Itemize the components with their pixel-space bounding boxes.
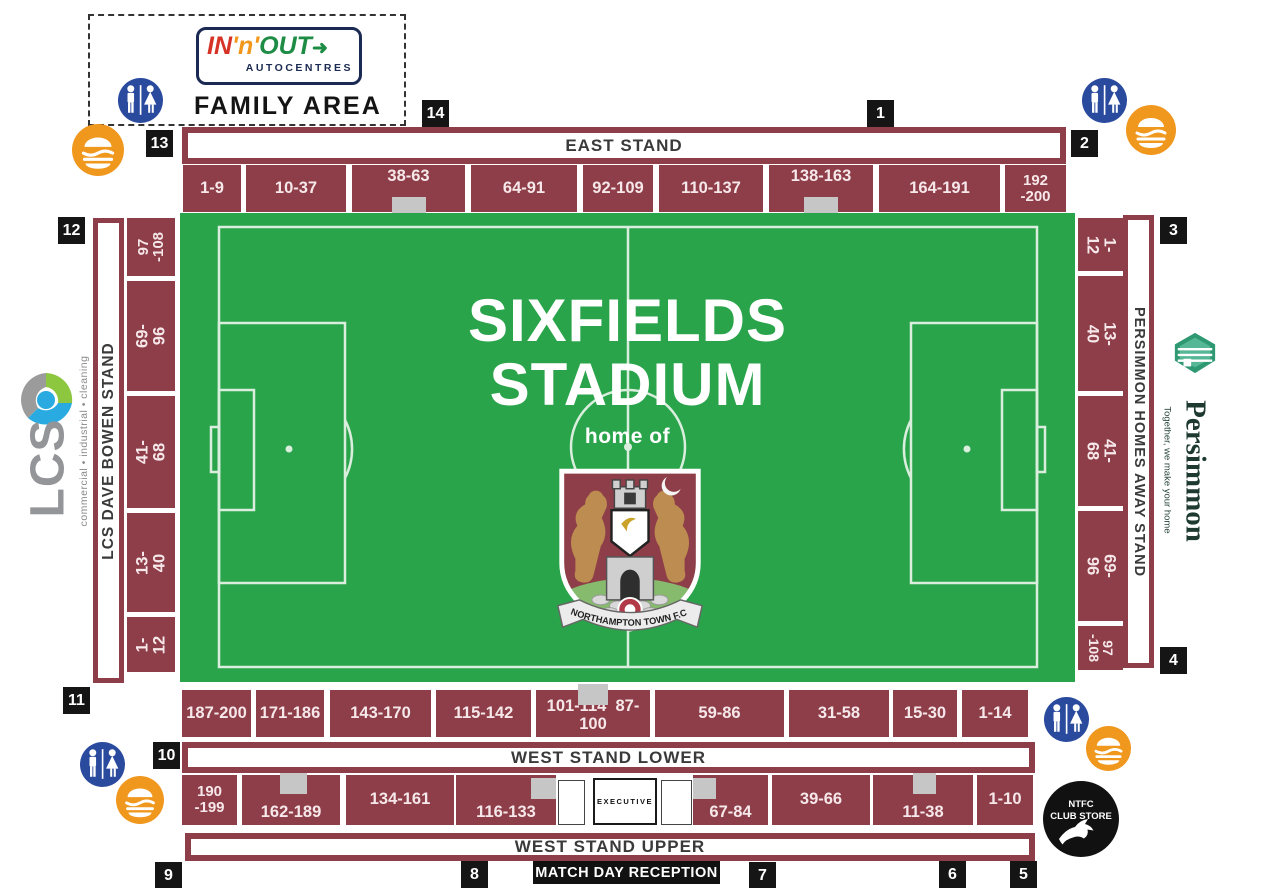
toilets-icon [1082, 78, 1127, 123]
west-lower-block-115-142[interactable]: 115-142 [436, 690, 531, 737]
west-upper-block-11-38[interactable]: 11-38 [873, 775, 973, 825]
stadium-seating-map: IN'n'OUT➜ AUTOCENTRES FAMILY AREA [0, 0, 1279, 888]
executive-area[interactable]: EXECUTIVE [593, 778, 657, 825]
away-block-69-96[interactable]: 69-96 [1078, 511, 1123, 621]
west-lower-block-187-200[interactable]: 187-200 [182, 690, 251, 737]
family-area-label: FAMILY AREA [194, 92, 382, 121]
gate-11: 11 [63, 687, 90, 714]
gate-9: 9 [155, 862, 182, 888]
persimmon-wordmark: Persimmon [1178, 383, 1212, 558]
west-lower-block-15-30[interactable]: 15-30 [893, 690, 957, 737]
stadium-subtitle: home of [180, 426, 1075, 448]
food-kiosk-icon [72, 124, 124, 176]
club-store-line1: NTFC [1068, 799, 1093, 810]
east-block-110-137[interactable]: 110-137 [659, 165, 763, 212]
gate-13: 13 [146, 130, 173, 157]
west-lower-block-1-14[interactable]: 1-14 [962, 690, 1028, 737]
west-upper-block-67-84[interactable]: 67-84 [693, 775, 768, 825]
gate-6: 6 [939, 861, 966, 888]
west-upper-block-134-161[interactable]: 134-161 [346, 775, 454, 825]
dave-bowen-block-1-12[interactable]: 1-12 [127, 617, 175, 672]
entrance-notch [578, 684, 608, 705]
gate-8: 8 [461, 861, 488, 888]
away-block-13-40[interactable]: 13-40 [1078, 276, 1123, 391]
gate-14: 14 [422, 100, 449, 127]
arrow-icon: ➜ [312, 38, 328, 59]
dave-bowen-block-41-68[interactable]: 41-68 [127, 396, 175, 508]
ntfc-crest: NORTHAMPTON TOWN F.C. [552, 463, 708, 649]
executive-box[interactable] [558, 780, 585, 825]
gate-3: 3 [1160, 217, 1187, 244]
east-block-38-63[interactable]: 38-63 [352, 165, 465, 212]
west-lower-block-59-86[interactable]: 59-86 [655, 690, 784, 737]
west-stand-lower-bar: WEST STAND LOWER [182, 742, 1035, 773]
entrance-notch [693, 778, 716, 799]
gate-7: 7 [749, 862, 776, 888]
executive-box[interactable] [661, 780, 692, 825]
dave-bowen-block-69-96[interactable]: 69-96 [127, 281, 175, 391]
persimmon-tagline: Together, we make your home [1160, 386, 1174, 554]
gate-10: 10 [153, 742, 180, 769]
west-upper-block-162-189[interactable]: 162-189 [242, 775, 340, 825]
away-block-1-12[interactable]: 1-12 [1078, 218, 1123, 271]
club-store: NTFC CLUB STORE [1042, 780, 1120, 858]
food-kiosk-icon [1126, 105, 1176, 155]
east-block-1-9[interactable]: 1-9 [183, 165, 241, 212]
dave-bowen-block-13-40[interactable]: 13-40 [127, 513, 175, 612]
food-kiosk-icon [116, 776, 164, 824]
toilets-icon [118, 78, 163, 123]
east-block-10-37[interactable]: 10-37 [246, 165, 346, 212]
entrance-notch [913, 773, 936, 794]
food-kiosk-icon [1086, 726, 1131, 771]
east-stand-bar: EAST STAND [182, 127, 1066, 164]
entrance-notch [531, 778, 556, 799]
west-lower-block-101-114-87-100[interactable]: 101-114 87-100 [536, 690, 650, 737]
west-upper-block-116-133[interactable]: 116-133 [456, 775, 556, 825]
west-lower-block-31-58[interactable]: 31-58 [789, 690, 889, 737]
gate-1: 1 [867, 100, 894, 127]
gate-5: 5 [1010, 861, 1037, 888]
stadium-title-line2: STADIUM [180, 353, 1075, 417]
east-block-164-191[interactable]: 164-191 [879, 165, 1000, 212]
gate-12: 12 [58, 217, 85, 244]
west-stand-upper-bar: WEST STAND UPPER [185, 833, 1035, 861]
innout-wordmark: IN'n'OUT➜ [207, 33, 353, 62]
toilets-icon [1044, 697, 1089, 742]
lcs-tagline: commercial • industrial • cleaning [76, 362, 92, 520]
west-upper-block-190-199[interactable]: 190 -199 [182, 775, 237, 825]
away-block-41-68[interactable]: 41-68 [1078, 396, 1123, 506]
away-stand-bar: PERSIMMON HOMES AWAY STAND [1123, 215, 1154, 668]
dave-bowen-block-97-108[interactable]: 97 -108 [127, 218, 175, 276]
away-block-97-108[interactable]: 97 -108 [1078, 626, 1123, 670]
east-block-138-163[interactable]: 138-163 [769, 165, 873, 212]
east-block-64-91[interactable]: 64-91 [471, 165, 577, 212]
west-lower-block-143-170[interactable]: 143-170 [330, 690, 431, 737]
west-upper-block-1-10[interactable]: 1-10 [977, 775, 1033, 825]
gate-4: 4 [1160, 647, 1187, 674]
club-store-line2: CLUB STORE [1050, 811, 1112, 822]
east-block-192-200[interactable]: 192 -200 [1005, 165, 1066, 212]
west-upper-block-39-66[interactable]: 39-66 [772, 775, 870, 825]
gate-2: 2 [1071, 130, 1098, 157]
east-block-92-109[interactable]: 92-109 [583, 165, 653, 212]
west-lower-block-171-186[interactable]: 171-186 [256, 690, 324, 737]
stadium-title-line1: SIXFIELDS [180, 289, 1075, 353]
stadium-title: SIXFIELDS STADIUM home of [180, 289, 1075, 448]
pitch: SIXFIELDS STADIUM home of [180, 213, 1075, 682]
lcs-logo-wordmark: LCS [24, 420, 72, 515]
dave-bowen-stand-bar: LCS DAVE BOWEN STAND [93, 218, 124, 683]
match-day-reception: MATCH DAY RECEPTION [533, 861, 720, 884]
innout-autocentres-logo: IN'n'OUT➜ AUTOCENTRES [196, 27, 362, 85]
persimmon-house-icon [1172, 330, 1218, 376]
entrance-notch [280, 773, 307, 794]
